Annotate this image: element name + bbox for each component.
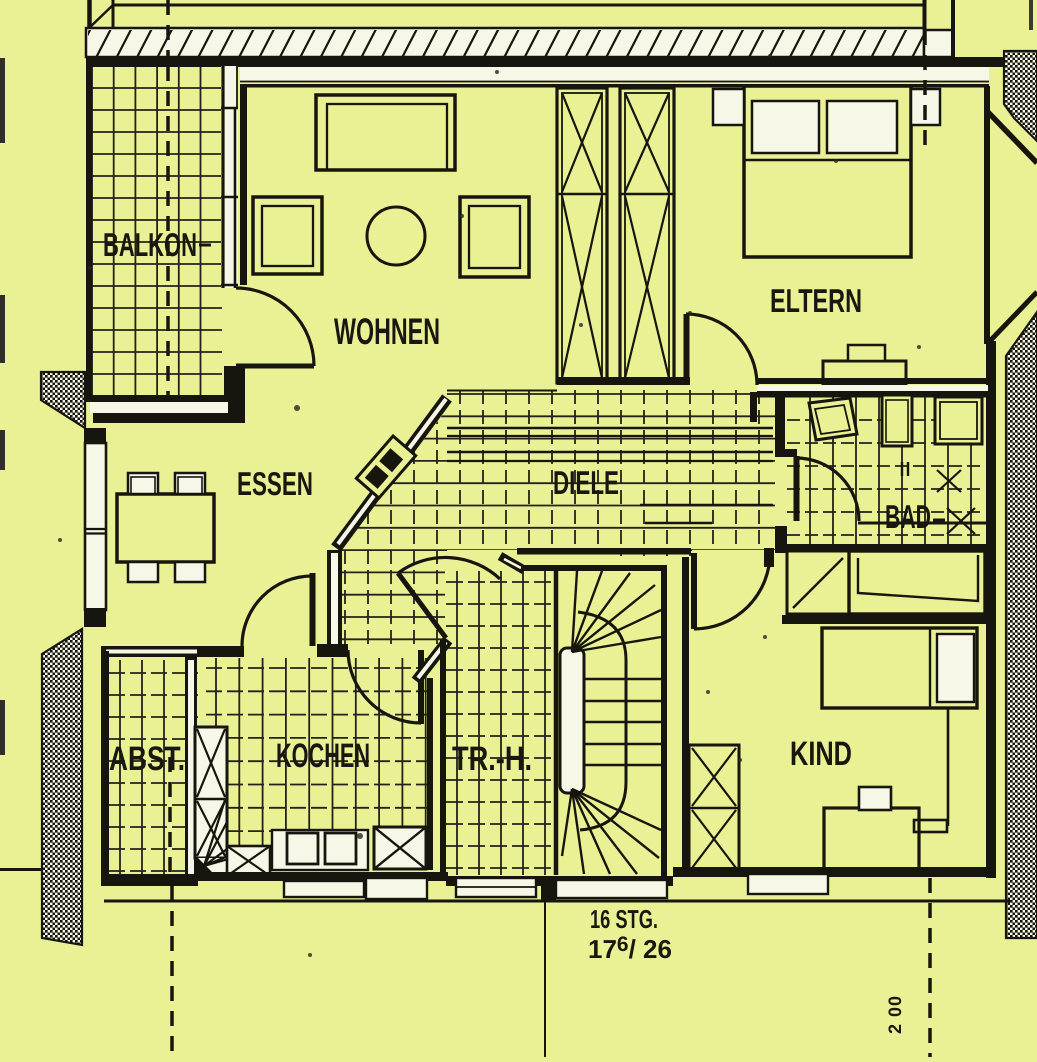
svg-text:WOHNEN: WOHNEN [334, 311, 440, 352]
svg-text:176/ 26: 176/ 26 [588, 933, 672, 964]
svg-text:2 00: 2 00 [885, 995, 905, 1034]
svg-text:DIELE: DIELE [553, 464, 619, 501]
svg-text:ESSEN: ESSEN [237, 465, 313, 502]
svg-text:16 STG.: 16 STG. [590, 904, 658, 934]
svg-text:BALKON: BALKON [103, 226, 197, 263]
svg-text:BAD: BAD [885, 498, 931, 535]
svg-text:KIND: KIND [790, 735, 852, 773]
svg-text:ELTERN: ELTERN [770, 282, 862, 319]
svg-text:ABST.: ABST. [109, 740, 185, 778]
svg-text:KOCHEN: KOCHEN [276, 737, 370, 775]
svg-text:TR.-H.: TR.-H. [452, 740, 532, 778]
